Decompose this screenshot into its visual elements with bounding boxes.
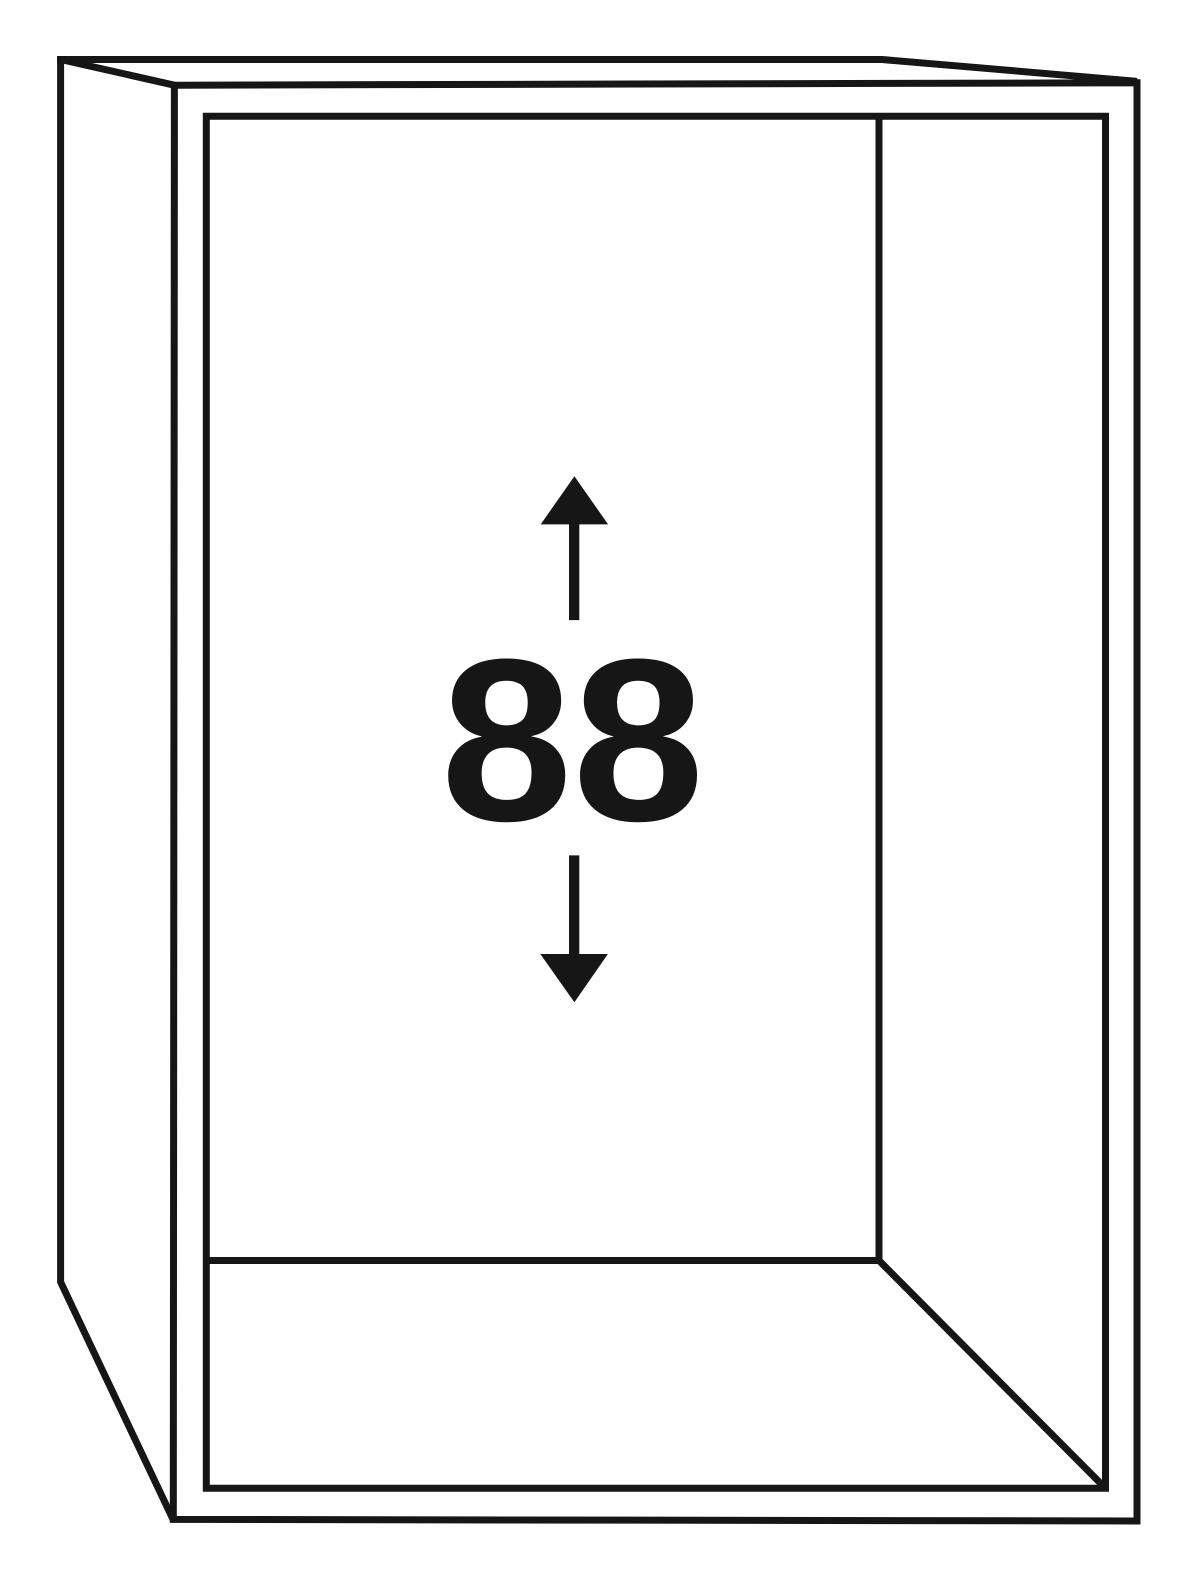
svg-text:88: 88 — [441, 611, 705, 870]
